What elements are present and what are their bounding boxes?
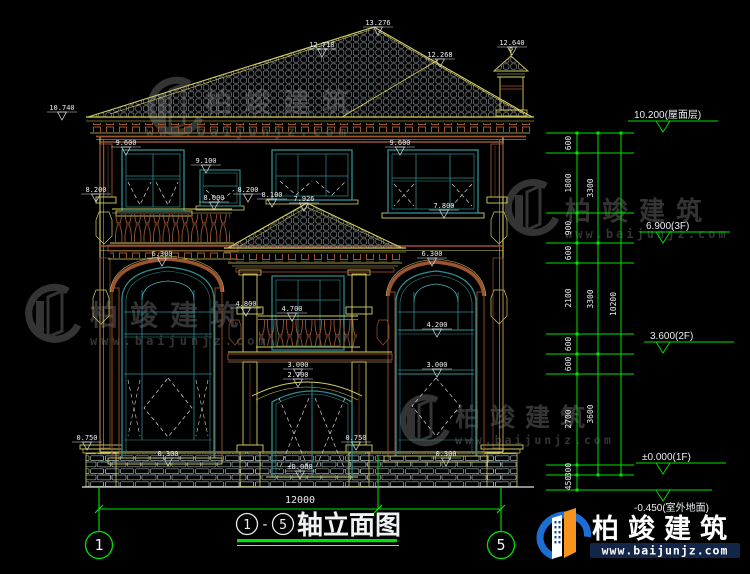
watermark-site: www.baijunjz.com [455, 433, 614, 447]
elev-mark-value: 9.600 [115, 139, 136, 147]
elev-mark-value: 13.276 [365, 19, 390, 27]
level-flag-label: -0.450(室外地面) [634, 501, 709, 514]
elev-mark-value: 8.200 [85, 186, 106, 194]
level-flag-label: 3.600(2F) [650, 331, 693, 342]
elev-mark-value: 4.200 [426, 321, 447, 329]
elev-mark-value: 9.600 [389, 139, 410, 147]
level-flag-label: 10.200(屋面层) [634, 109, 701, 121]
chain-dim: 3600 [586, 404, 595, 423]
elev-mark-value: 3.000 [287, 361, 308, 369]
elev-mark-value: 7.800 [433, 202, 454, 210]
chain-dim: 1800 [564, 173, 573, 192]
elev-mark-value: 0.750 [345, 434, 366, 442]
overall-width-dim: 12000 [285, 495, 315, 506]
elev-mark-value: 7.926 [293, 195, 314, 203]
footer-logo-brand: 柏竣建筑 [592, 513, 736, 544]
chain-dim: 2700 [564, 409, 573, 428]
level-flag-label: 6.900(3F) [646, 221, 689, 232]
chain-dim: 3300 [586, 178, 595, 197]
chain-dim: 600 [564, 136, 573, 151]
axis-bubble-1-label: 1 [94, 536, 103, 554]
balcony-3f [108, 209, 238, 259]
chain-dim: 600 [564, 337, 573, 352]
chain-dim: 2100 [564, 288, 573, 307]
watermark-brand: 柏竣建筑 [565, 196, 713, 226]
elev-mark-value: 10.740 [49, 104, 74, 112]
title-separator: - [261, 517, 269, 533]
level-flag-label: ±0.000(1F) [642, 452, 691, 463]
elev-mark-value: 8.100 [261, 191, 282, 199]
title-underline [237, 539, 397, 542]
title-label: 轴立面图 [297, 510, 401, 540]
eave-dentils [90, 123, 530, 132]
elev-mark-value: 12.640 [499, 39, 524, 47]
cad-elevation-drawing: 柏竣建筑 www.baijunjz.com 柏竣建筑 www.baijunjz.… [0, 0, 750, 574]
chain-dim: 3300 [586, 289, 595, 308]
title-axis-to: 5 [279, 518, 287, 533]
chain-dim: 900 [564, 221, 573, 236]
elev-mark-value: 6.300 [151, 250, 172, 258]
elev-mark-value: 2.700 [287, 371, 308, 379]
elev-mark-value: 9.100 [195, 157, 216, 165]
footer-logo: 柏竣建筑 www.baijunjz.com [534, 508, 740, 559]
elev-mark-value: 12.268 [427, 51, 452, 59]
elev-mark-value: 12.718 [309, 41, 334, 49]
elev-mark-value: 0.300 [157, 450, 178, 458]
footer-logo-site: www.baijunjz.com [602, 544, 729, 558]
chain-dim: 450 [564, 476, 573, 491]
chain-dim: 600 [564, 357, 573, 372]
elev-mark-value: 3.000 [426, 361, 447, 369]
drawing-canvas: 柏竣建筑 www.baijunjz.com 柏竣建筑 www.baijunjz.… [0, 0, 750, 574]
chain-dim: 10200 [609, 292, 618, 316]
elev-mark-value: 0.300 [435, 450, 456, 458]
elev-mark-value: 4.700 [281, 305, 302, 313]
elev-mark-value: ±0.000 [287, 463, 312, 471]
chain-dim: 300 [564, 463, 573, 478]
chain-dim: 600 [564, 246, 573, 261]
elev-mark-value: 4.800 [235, 300, 256, 308]
elev-mark-value: 8.000 [203, 194, 224, 202]
axis-bubble-5-label: 5 [496, 536, 505, 554]
title-axis-from: 1 [243, 518, 251, 533]
elev-mark-value: 6.300 [421, 250, 442, 258]
elev-mark-value: 8.200 [237, 186, 258, 194]
elev-mark-value: 0.750 [76, 434, 97, 442]
watermark-brand: 柏竣建筑 [90, 299, 250, 331]
